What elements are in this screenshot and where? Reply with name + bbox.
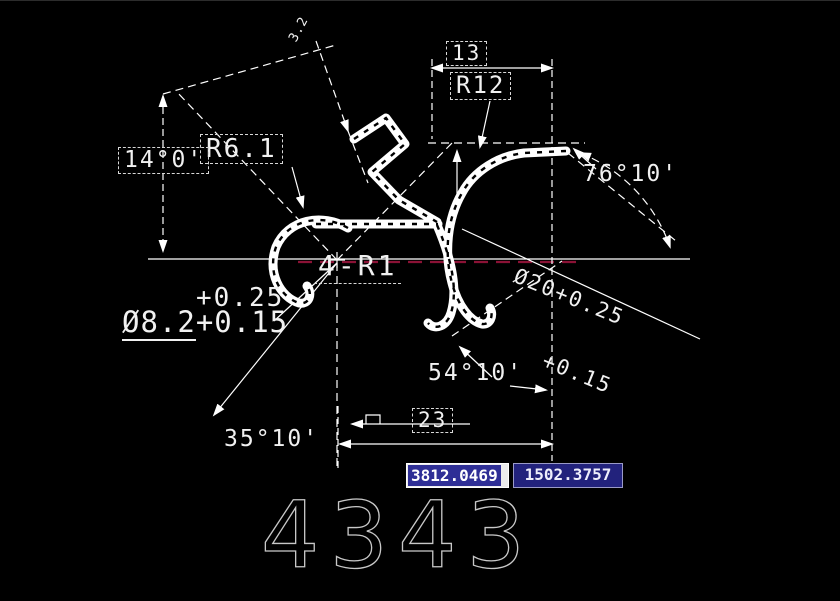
dia8-minus: +0.15 xyxy=(196,305,288,339)
leader-r12[interactable] xyxy=(480,101,490,147)
label-dim-23[interactable]: 23 xyxy=(412,408,453,433)
label-r6-1[interactable]: R6.1 xyxy=(200,134,283,164)
part-number-text[interactable]: 4343 xyxy=(261,482,535,589)
dia8-main: Ø8.2 xyxy=(122,305,196,341)
label-r12[interactable]: R12 xyxy=(450,72,511,100)
coord-x-field[interactable]: 3812.0469 xyxy=(406,463,509,488)
label-angle-14[interactable]: 14°0' xyxy=(118,147,209,174)
label-angle-54[interactable]: 54°10' xyxy=(428,361,523,386)
label-fillets[interactable]: 4-R1 xyxy=(314,251,401,284)
ext-line-14deg-top[interactable] xyxy=(163,45,336,94)
cad-viewport: 4343 3.2 13 R12 R6.1 14°0' 76°10' Ø20+0.… xyxy=(0,0,840,601)
drawing-canvas: 4343 xyxy=(0,1,840,601)
coord-y-value: 1502.3757 xyxy=(525,465,612,484)
step-notch-symbol[interactable] xyxy=(366,415,380,424)
profile-zigzag[interactable] xyxy=(354,118,437,222)
leader-top-small[interactable] xyxy=(316,41,348,131)
label-dia8[interactable]: Ø8.2+0.15 xyxy=(122,307,288,338)
coord-x-value[interactable]: 3812.0469 xyxy=(408,465,501,486)
dia20-line1: Ø20+0.25 xyxy=(511,265,641,335)
coord-y-field[interactable]: 1502.3757 xyxy=(513,463,623,488)
label-angle-35[interactable]: 35°10' xyxy=(224,427,319,452)
radial-line-upper-left[interactable] xyxy=(176,91,337,260)
label-dim-13[interactable]: 13 xyxy=(446,41,487,66)
dimension-lines xyxy=(148,41,700,468)
leader-r6-1[interactable] xyxy=(292,167,303,207)
label-angle-76[interactable]: 76°10' xyxy=(583,162,678,187)
